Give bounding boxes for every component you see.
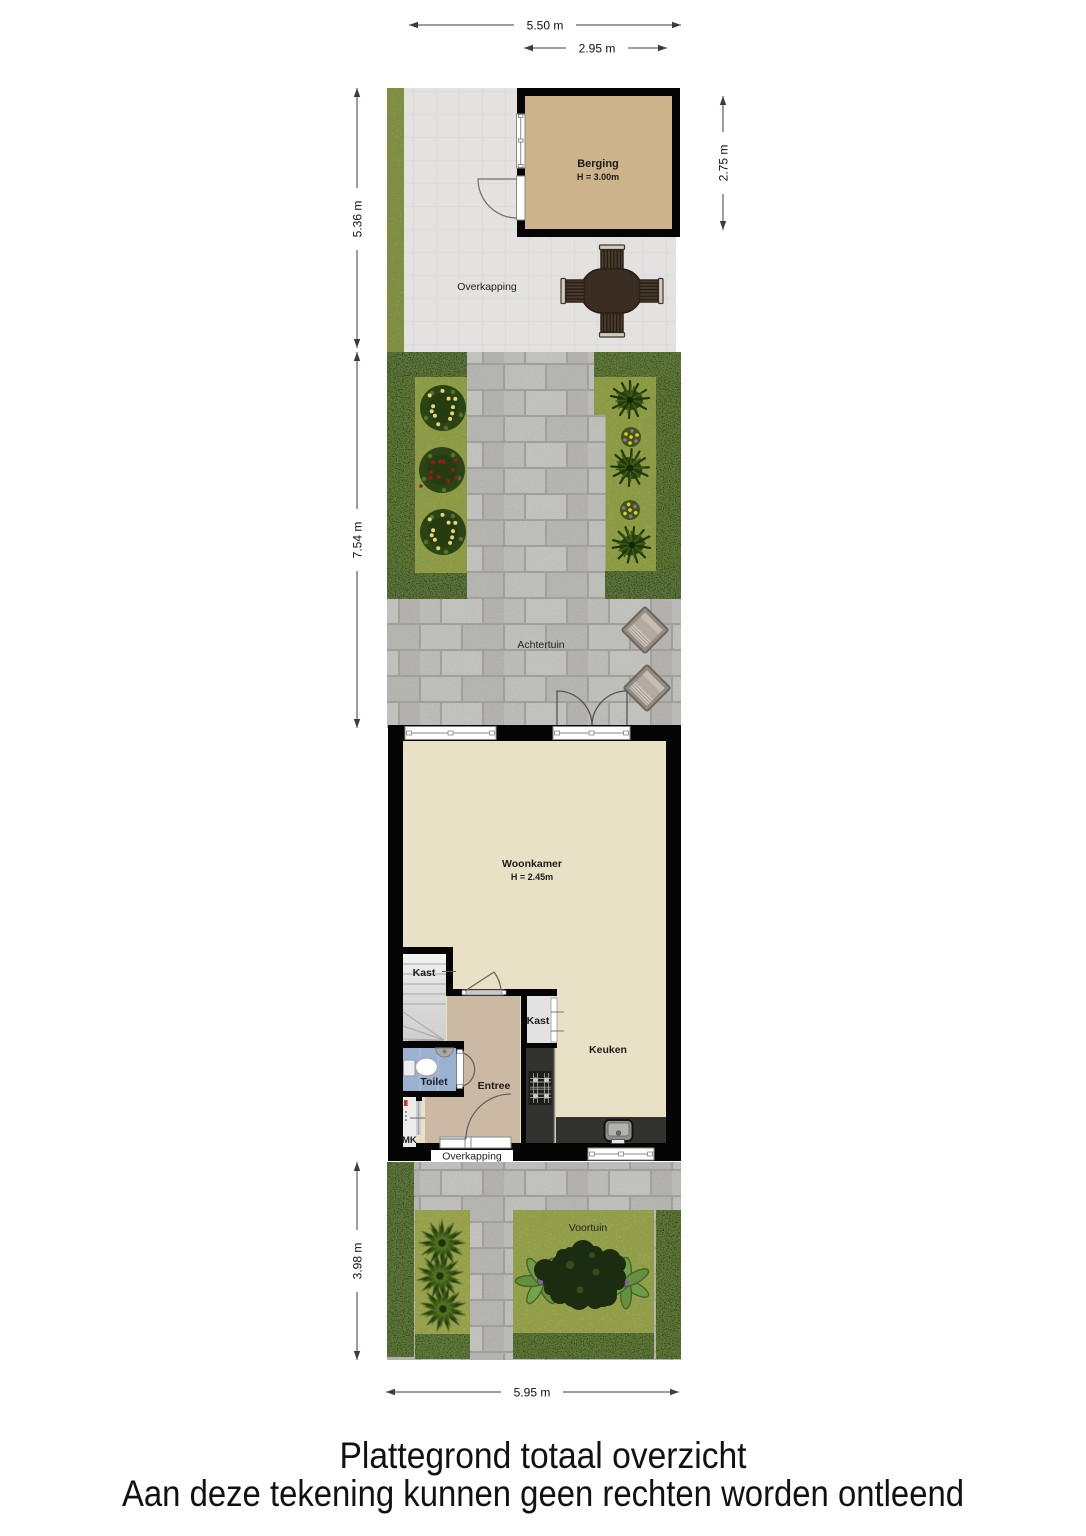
svg-text:MK: MK (402, 1135, 417, 1146)
svg-text:Voortuin: Voortuin (569, 1222, 608, 1234)
svg-text:Overkapping: Overkapping (442, 1151, 502, 1163)
svg-text:Aan deze tekening kunnen geen: Aan deze tekening kunnen geen rechten wo… (122, 1473, 964, 1514)
svg-text:Berging: Berging (577, 158, 619, 170)
svg-text:3.98 m: 3.98 m (351, 1243, 365, 1280)
svg-text:5.50 m: 5.50 m (527, 19, 564, 33)
svg-text:2.75 m: 2.75 m (717, 145, 731, 182)
svg-text:Woonkamer: Woonkamer (502, 858, 562, 870)
svg-text:Overkapping: Overkapping (457, 281, 517, 293)
svg-text:H = 2.45m: H = 2.45m (511, 872, 553, 882)
svg-text:Toilet: Toilet (420, 1076, 448, 1088)
svg-text:Kast: Kast (413, 967, 436, 979)
svg-text:2.95 m: 2.95 m (579, 42, 616, 56)
svg-text:Keuken: Keuken (589, 1044, 627, 1056)
svg-text:H = 3.00m: H = 3.00m (577, 172, 619, 182)
svg-text:Kast: Kast (527, 1015, 550, 1027)
svg-text:7.54 m: 7.54 m (351, 522, 365, 559)
svg-text:5.36 m: 5.36 m (351, 201, 365, 238)
svg-text:5.95 m: 5.95 m (514, 1386, 551, 1400)
svg-text:Achtertuin: Achtertuin (517, 639, 564, 651)
svg-text:Entree: Entree (478, 1080, 511, 1092)
svg-text:Plattegrond totaal overzicht: Plattegrond totaal overzicht (340, 1435, 748, 1476)
